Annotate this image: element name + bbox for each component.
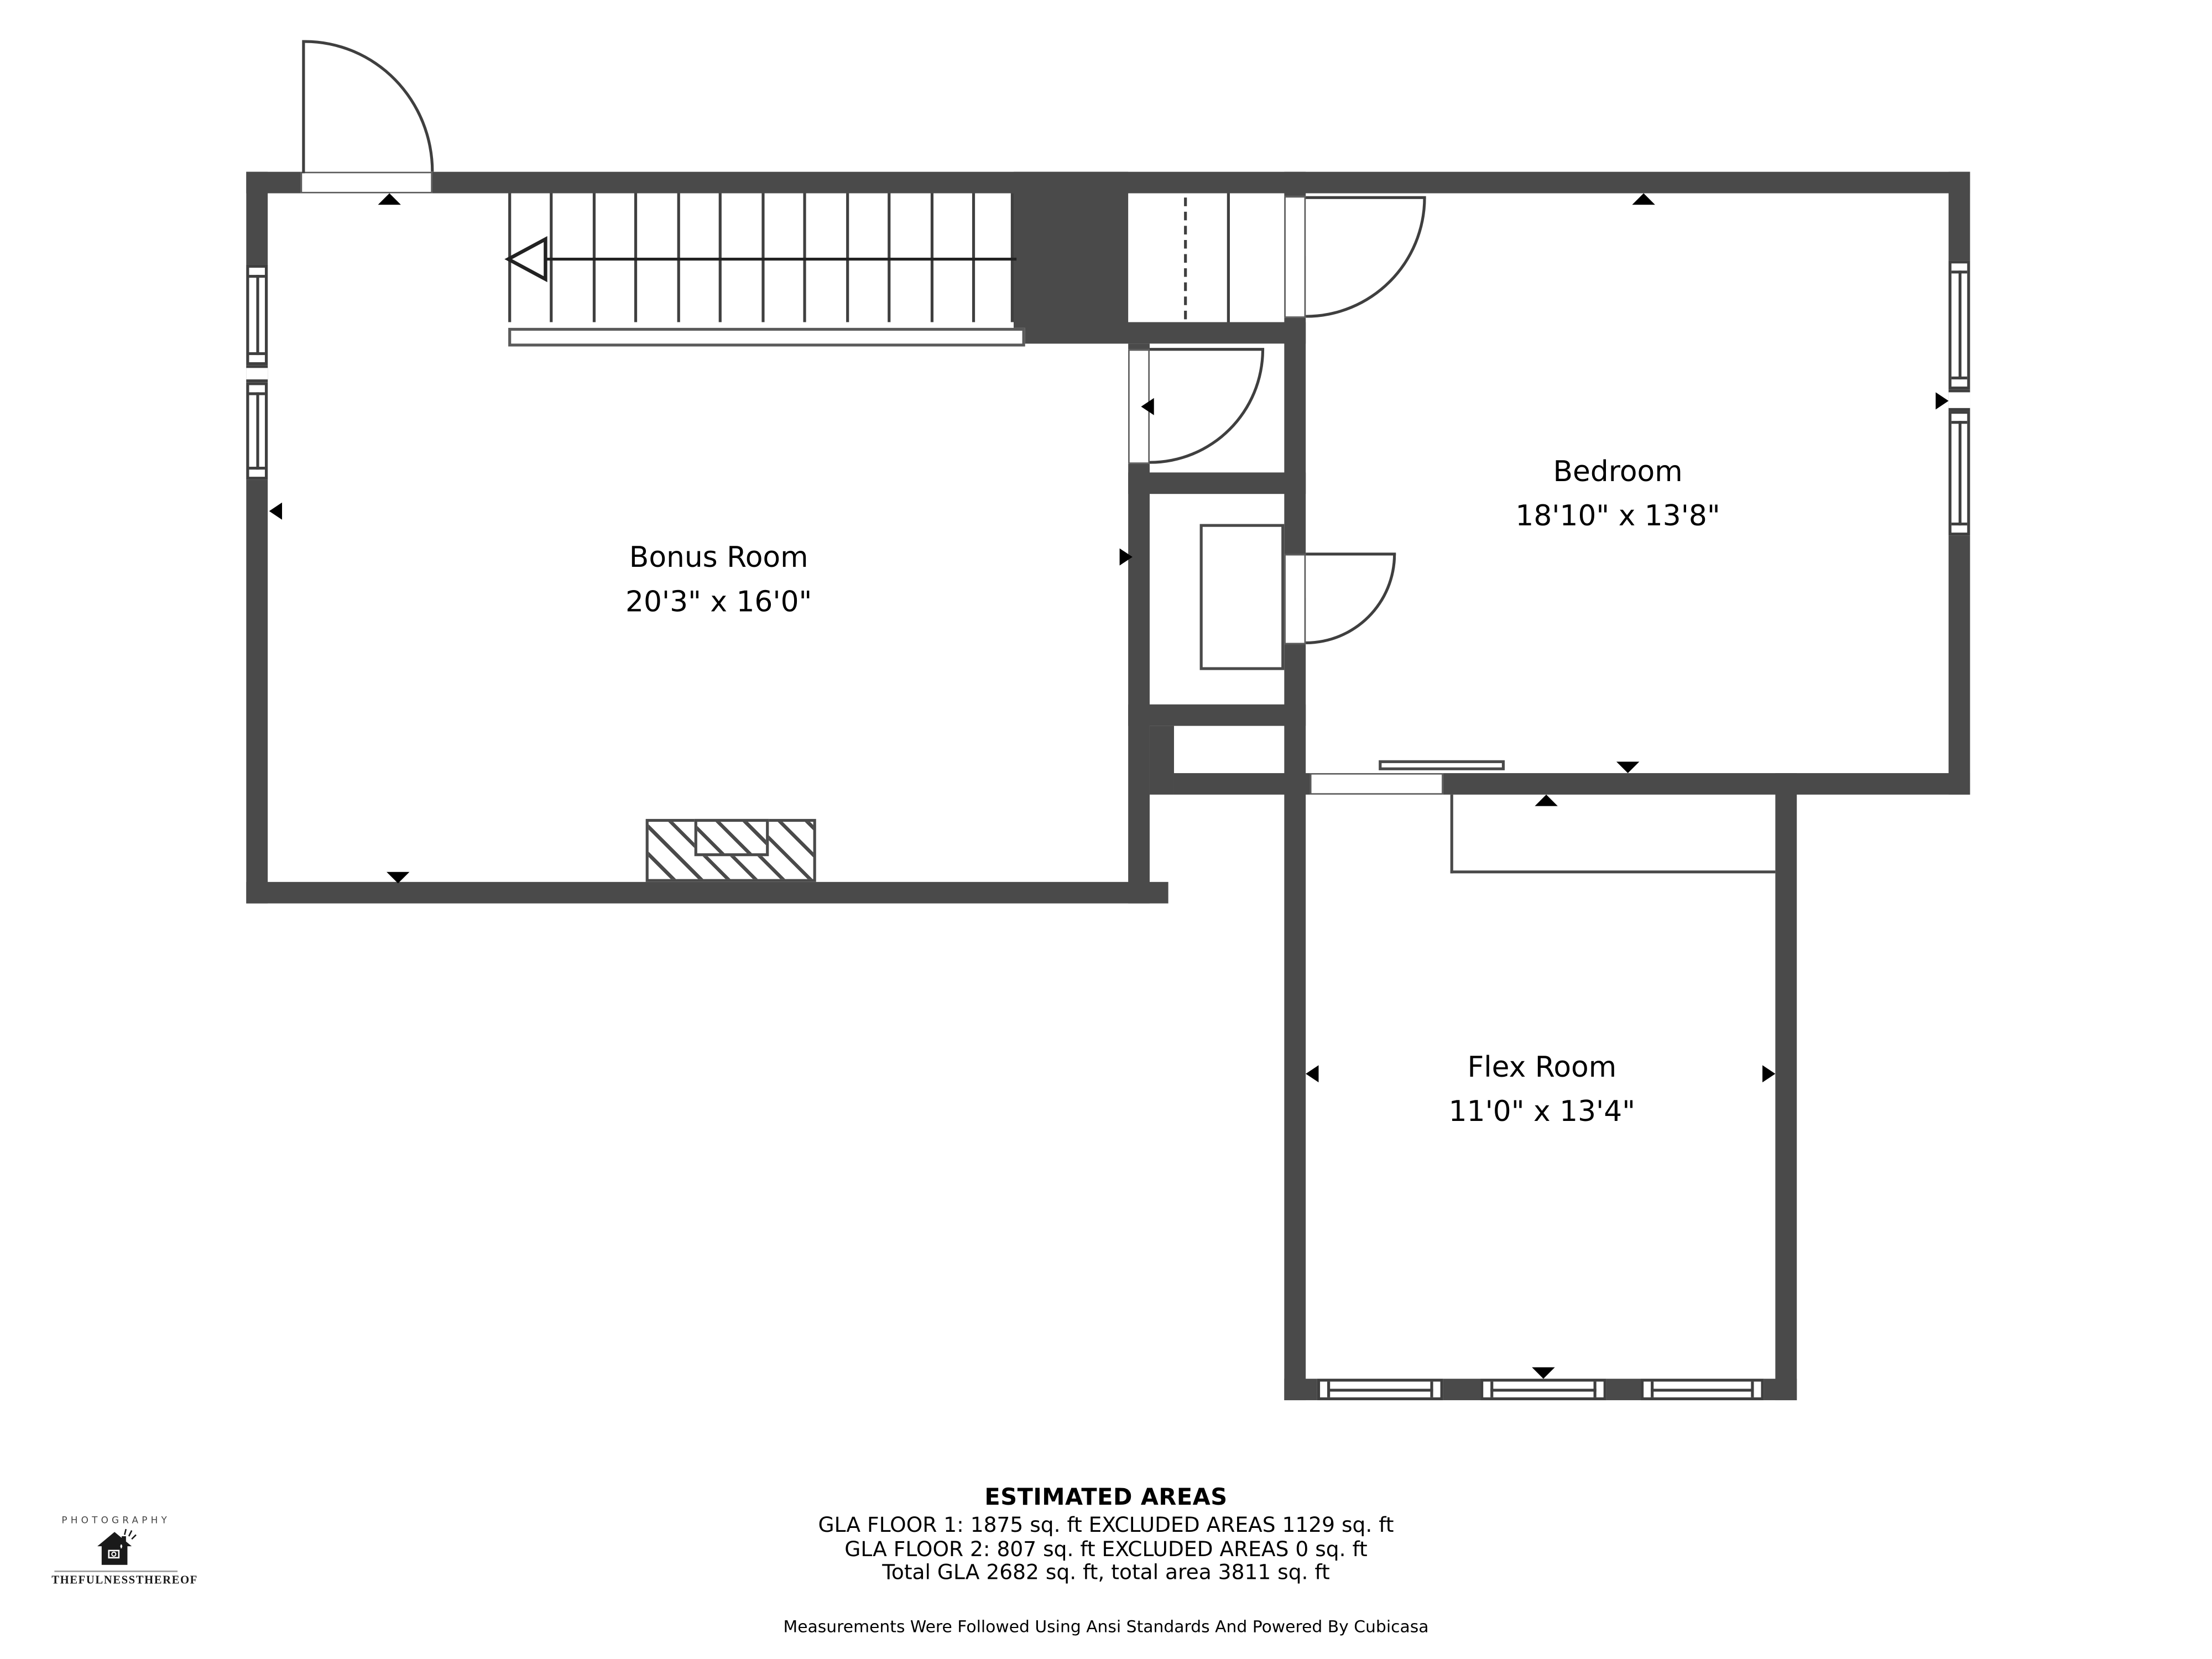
wall-stair-landing-divider: [1014, 322, 1306, 344]
window-flex-2: [1480, 1379, 1606, 1400]
room-label-bonus: Bonus Room 20'3" x 16'0": [625, 535, 812, 624]
room-dimensions: 18'10" x 13'8": [1515, 494, 1720, 538]
window-bedroom-right-sill: [1949, 389, 1970, 411]
logo-divider: [54, 1571, 178, 1572]
bedroom-door-arc: [1306, 197, 1426, 317]
closet-door-opening: [1284, 554, 1306, 644]
logo-top-text: PHOTOGRAPHY: [51, 1515, 180, 1526]
marker-down-bedroom-bottom-icon: [1616, 761, 1639, 773]
window-bonus-left-1: [246, 265, 268, 365]
window-bedroom-right-2: [1949, 411, 1970, 535]
marker-up-bonus-top-icon: [378, 194, 400, 205]
window-flex-3: [1641, 1379, 1764, 1400]
window-bonus-left-2: [246, 382, 268, 479]
estimated-areas-block: ESTIMATED AREAS GLA FLOOR 1: 1875 sq. ft…: [0, 1483, 2212, 1636]
room-dimensions: 11'0" x 13'4": [1449, 1089, 1635, 1134]
hall-door-arc: [1150, 349, 1264, 464]
window-bonus-left-sill: [246, 365, 268, 382]
flex-closet-area: [1451, 795, 1776, 873]
room-name: Flex Room: [1449, 1045, 1635, 1089]
marker-left-hall-icon: [1141, 398, 1154, 415]
photographer-logo: PHOTOGRAPHY THEFULNESSTHEREOF: [51, 1515, 180, 1586]
bedroom-shelf: [1379, 760, 1505, 770]
room-label-flex: Flex Room 11'0" x 13'4": [1449, 1045, 1635, 1134]
measurement-standards-note: Measurements Were Followed Using Ansi St…: [0, 1616, 2212, 1636]
wall-bonus-bottom: [246, 882, 1168, 904]
gla-floor2-line: GLA FLOOR 2: 807 sq. ft EXCLUDED AREAS 0…: [0, 1538, 2212, 1562]
marker-right-closet-icon: [1120, 549, 1133, 566]
page: Bonus Room 20'3" x 16'0" Bedroom 18'10" …: [0, 0, 2212, 1659]
bedroom-door-opening: [1284, 196, 1306, 318]
wall-stub: [1150, 726, 1174, 795]
marker-down-bonus-bottom-icon: [387, 872, 409, 884]
house-camera-icon: [92, 1526, 140, 1569]
gla-total-line: Total GLA 2682 sq. ft, total area 3811 s…: [0, 1562, 2212, 1586]
marker-up-bedroom-top-icon: [1632, 194, 1655, 205]
room-name: Bedroom: [1515, 450, 1720, 494]
estimated-areas-title: ESTIMATED AREAS: [0, 1483, 2212, 1510]
wall-closet-bottom: [1128, 705, 1306, 726]
stair-down-arrow-icon: [504, 235, 550, 284]
marker-right-flex-icon: [1762, 1065, 1775, 1082]
room-name: Bonus Room: [625, 535, 812, 580]
marker-down-flex-bottom-icon: [1532, 1367, 1554, 1379]
flex-doorway-opening: [1310, 773, 1443, 795]
marker-left-bonus-left-icon: [269, 503, 282, 520]
chimney-hatch-small: [695, 819, 769, 856]
wall-closet-top: [1128, 472, 1306, 494]
marker-right-bedroom-icon: [1936, 392, 1948, 409]
entry-door-opening: [301, 172, 432, 194]
room-dimensions: 20'3" x 16'0": [625, 580, 812, 624]
window-flex-1: [1317, 1379, 1443, 1400]
wall-bedroom-bottom: [1174, 773, 1970, 795]
stair-section-cut-line: [1184, 197, 1187, 319]
stair-flight-divider-line: [1227, 194, 1230, 322]
gla-floor1-line: GLA FLOOR 1: 1875 sq. ft EXCLUDED AREAS …: [0, 1515, 2212, 1538]
stair-landing-strip: [508, 328, 1025, 347]
wall-stair-block: [1014, 172, 1128, 344]
closet-door-arc: [1306, 554, 1396, 644]
window-bedroom-right-1: [1949, 260, 1970, 389]
marker-left-flex-icon: [1306, 1065, 1318, 1082]
floor-plan: Bonus Room 20'3" x 16'0" Bedroom 18'10" …: [0, 0, 2212, 1659]
wall-flex-right: [1775, 773, 1797, 1400]
stair-direction-line: [527, 258, 1016, 260]
marker-up-flex-top-icon: [1535, 795, 1557, 806]
closet-wardrobe: [1200, 524, 1285, 670]
logo-bottom-text: THEFULNESSTHEREOF: [51, 1573, 180, 1586]
room-label-bedroom: Bedroom 18'10" x 13'8": [1515, 450, 1720, 539]
entry-door-arc: [305, 40, 434, 171]
